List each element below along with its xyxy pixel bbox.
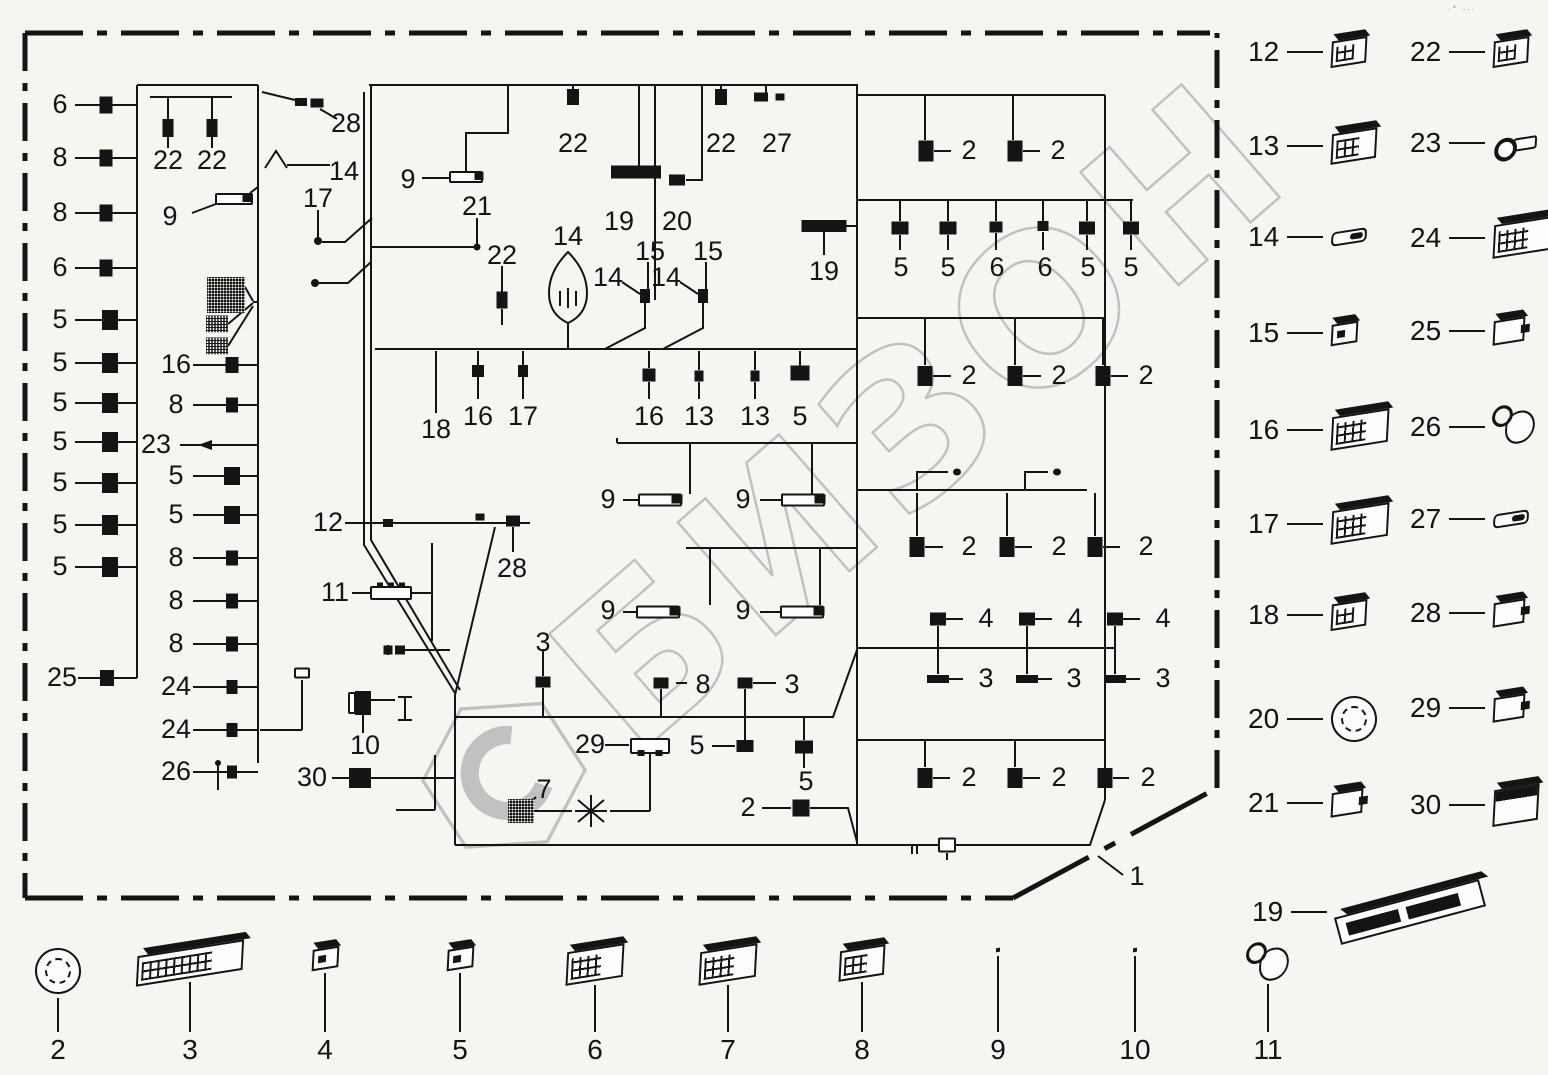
wiring-harness-parts-diagram: БИЗОН	[0, 0, 1548, 1075]
corner-marks: ∙° ∙∙∙	[1448, 4, 1476, 14]
wiring-diagram	[0, 0, 1548, 1075]
